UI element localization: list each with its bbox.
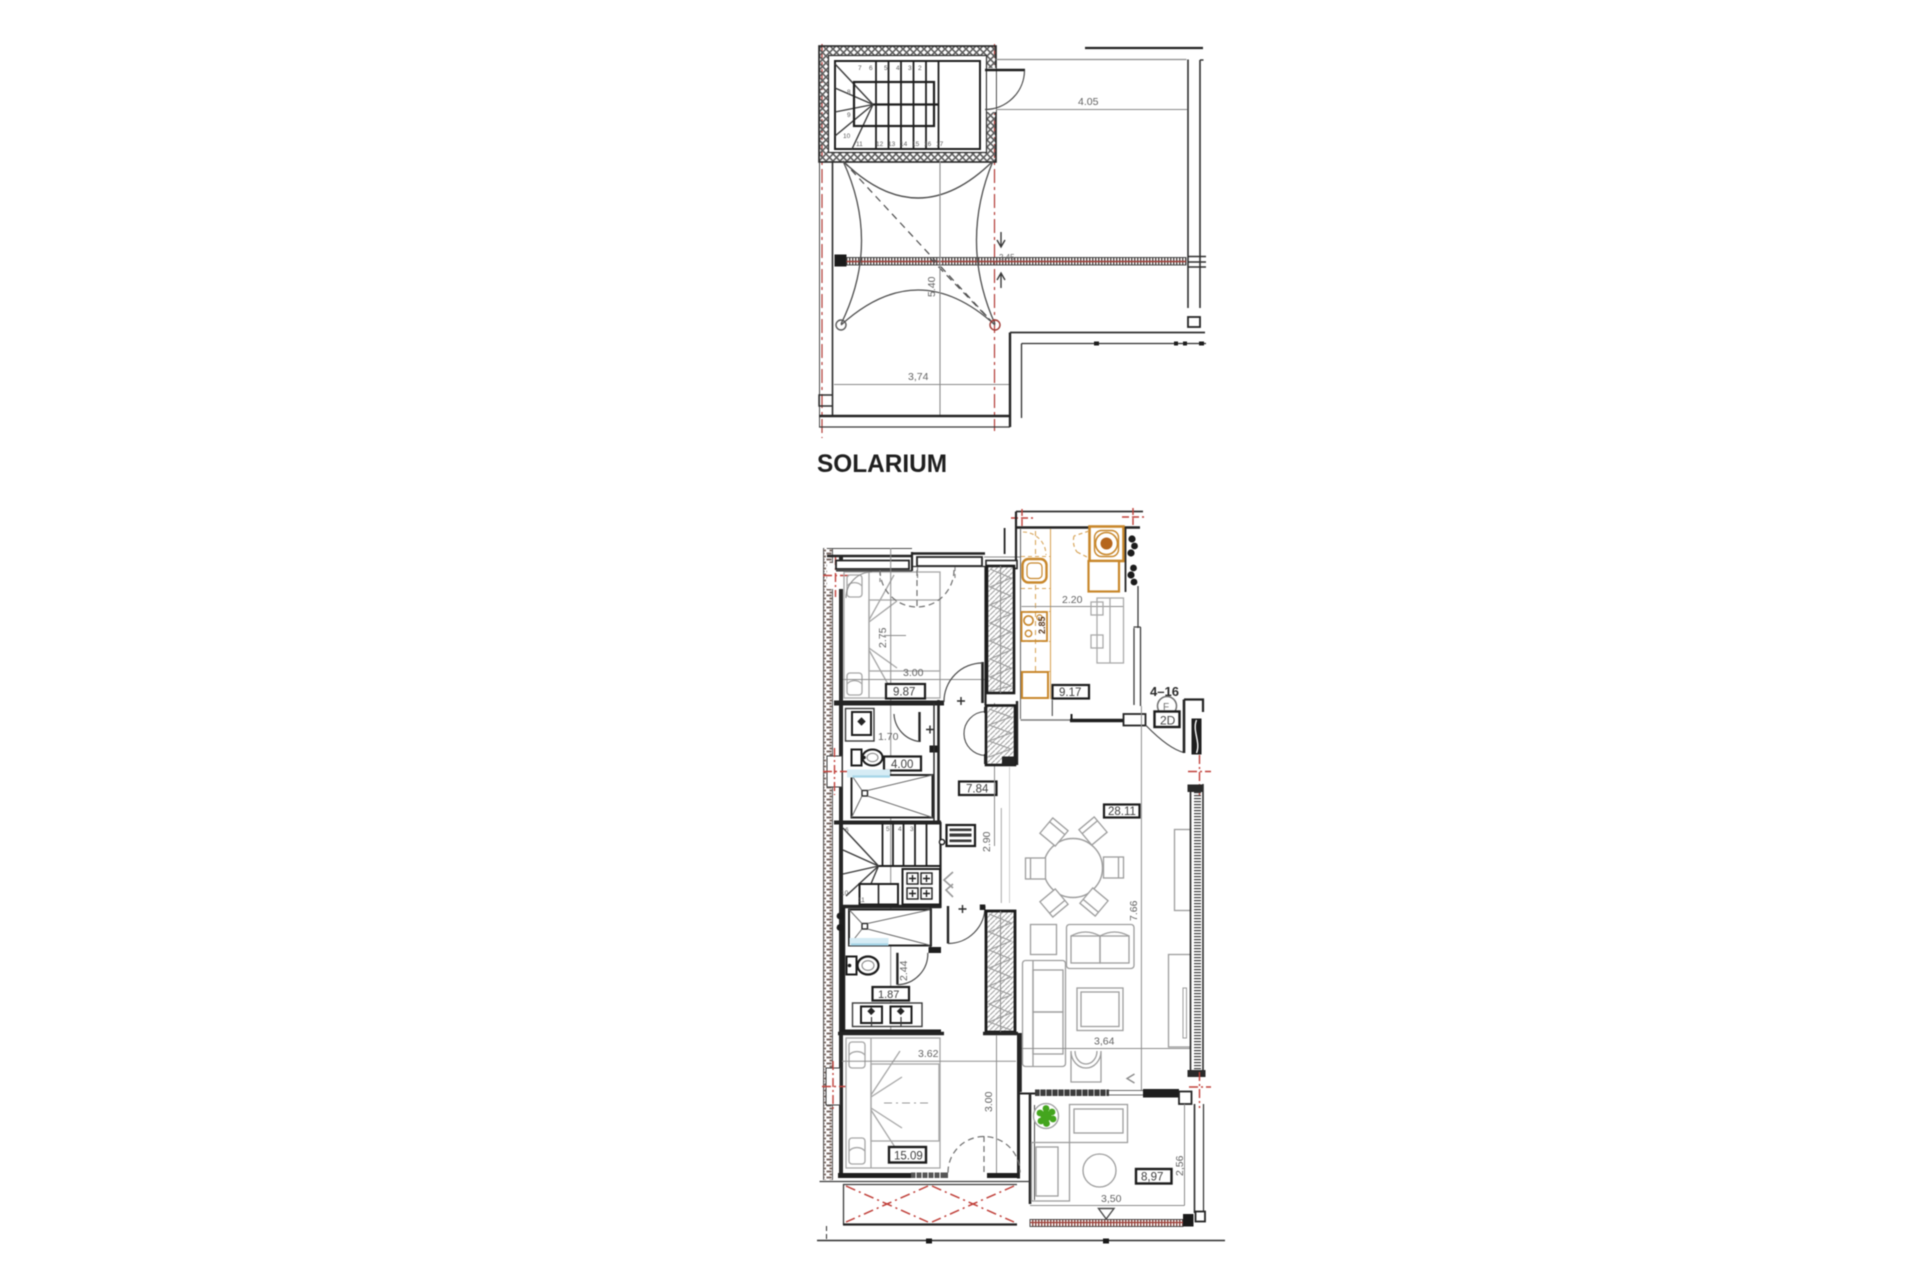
svg-text:15.09: 15.09 <box>894 1151 923 1163</box>
svg-text:1.87: 1.87 <box>878 989 899 1001</box>
svg-text:2.75: 2.75 <box>877 627 889 648</box>
svg-text:13: 13 <box>888 141 896 148</box>
svg-text:5.40: 5.40 <box>926 276 938 297</box>
svg-text:11: 11 <box>858 897 865 904</box>
svg-text:9.87: 9.87 <box>893 687 915 699</box>
svg-text:4: 4 <box>896 65 900 72</box>
svg-text:5: 5 <box>886 826 890 833</box>
svg-text:2,56: 2,56 <box>1174 1155 1186 1176</box>
svg-text:11: 11 <box>856 141 863 148</box>
svg-text:8: 8 <box>847 89 851 96</box>
svg-text:8,97: 8,97 <box>1141 1172 1163 1184</box>
svg-text:2.44: 2.44 <box>898 960 910 981</box>
svg-text:3: 3 <box>908 65 912 72</box>
svg-text:4.05: 4.05 <box>1078 96 1099 108</box>
svg-text:10: 10 <box>841 890 849 897</box>
svg-text:9.17: 9.17 <box>1059 687 1081 699</box>
svg-text:7.66: 7.66 <box>1128 900 1140 921</box>
svg-text:2.45: 2.45 <box>999 253 1015 262</box>
svg-text:9: 9 <box>847 112 851 119</box>
svg-text:3,50: 3,50 <box>1101 1193 1122 1205</box>
svg-text:3,74: 3,74 <box>908 371 929 383</box>
svg-text:1.70: 1.70 <box>878 731 899 743</box>
svg-text:2.20: 2.20 <box>1062 594 1083 606</box>
svg-text:6: 6 <box>869 65 873 72</box>
svg-text:4.00: 4.00 <box>891 759 913 771</box>
svg-text:12: 12 <box>876 141 884 148</box>
svg-text:7.84: 7.84 <box>966 784 989 796</box>
svg-text:15: 15 <box>912 141 920 148</box>
svg-text:SOLARIUM: SOLARIUM <box>817 450 947 478</box>
svg-text:3.00: 3.00 <box>983 1091 995 1112</box>
svg-text:14: 14 <box>900 141 908 148</box>
svg-text:3,64: 3,64 <box>1094 1036 1115 1048</box>
svg-text:7: 7 <box>858 65 862 72</box>
svg-text:10: 10 <box>843 133 851 140</box>
svg-text:17: 17 <box>936 141 944 148</box>
svg-text:6: 6 <box>845 827 849 834</box>
svg-text:4: 4 <box>898 826 902 833</box>
svg-text:2: 2 <box>918 65 922 72</box>
svg-text:28.11: 28.11 <box>1108 806 1136 818</box>
svg-text:2D: 2D <box>1160 714 1176 728</box>
svg-text:16: 16 <box>924 141 932 148</box>
svg-text:2.90: 2.90 <box>981 831 993 852</box>
svg-text:3.62: 3.62 <box>918 1048 939 1060</box>
svg-text:3: 3 <box>910 826 914 833</box>
svg-text:3.00: 3.00 <box>903 667 924 679</box>
svg-text:2.85: 2.85 <box>1037 616 1047 634</box>
svg-text:5: 5 <box>884 65 888 72</box>
